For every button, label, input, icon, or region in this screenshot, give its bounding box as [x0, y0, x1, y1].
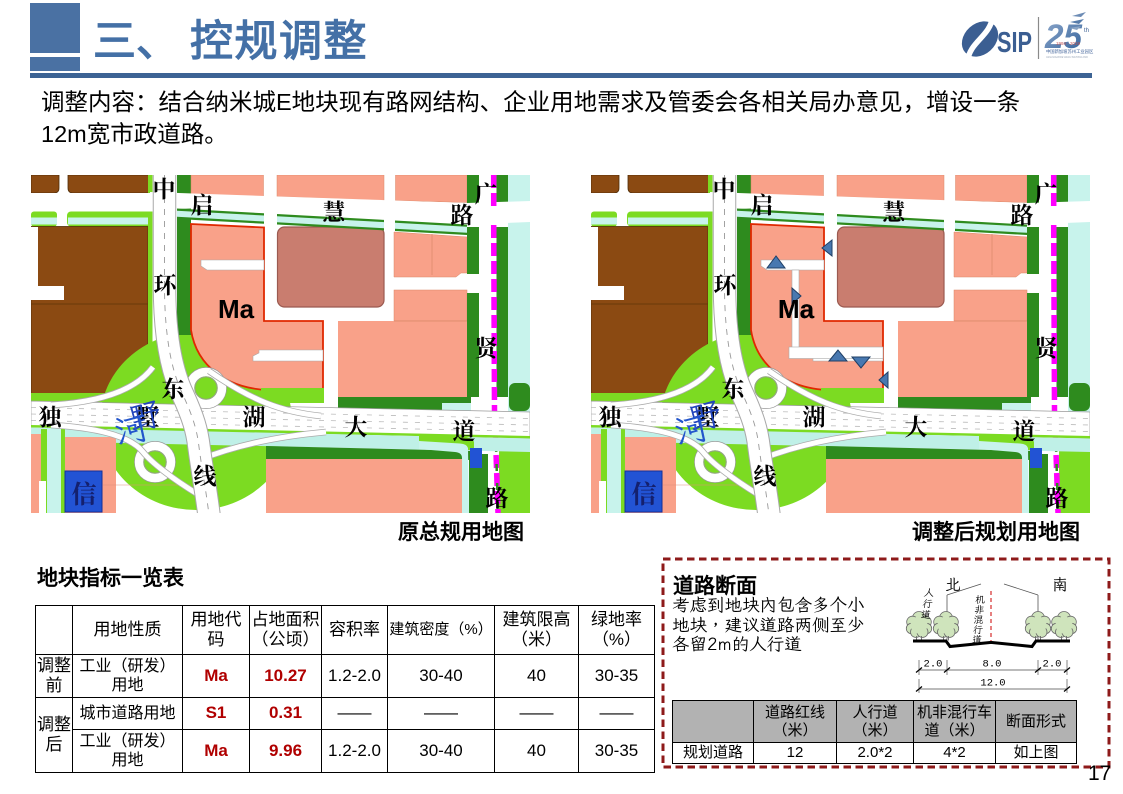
svg-text:道: 道 [972, 633, 983, 646]
svg-text:2.0: 2.0 [1043, 659, 1062, 671]
svg-text:th: th [1084, 28, 1089, 34]
svg-text:道: 道 [920, 608, 932, 621]
svg-text:道: 道 [453, 413, 476, 446]
svg-text:路: 路 [451, 197, 474, 230]
svg-text:环: 环 [154, 267, 179, 300]
svg-text:慧: 慧 [323, 194, 347, 227]
svg-text:贤: 贤 [475, 330, 501, 363]
svg-text:中国新加坡苏州工业园区: 中国新加坡苏州工业园区 [1046, 48, 1094, 55]
svg-text:线: 线 [194, 458, 217, 491]
svg-text:SIP: SIP [997, 27, 1032, 59]
svg-text:8.0: 8.0 [983, 659, 1002, 671]
svg-text:12.0: 12.0 [980, 678, 1005, 690]
svg-text:路: 路 [486, 480, 509, 513]
svg-text:信: 信 [71, 475, 96, 511]
svg-text:启: 启 [191, 187, 214, 220]
svg-text:Ma: Ma [778, 294, 815, 324]
svg-text:湖: 湖 [243, 399, 266, 432]
svg-text:东: 东 [162, 371, 187, 404]
svg-text:Ma: Ma [218, 294, 255, 324]
svg-text:独: 独 [39, 399, 64, 432]
svg-text:大: 大 [345, 409, 368, 442]
svg-text:南: 南 [1052, 573, 1068, 595]
svg-text:中: 中 [153, 175, 176, 204]
svg-text:CHINA-SINGAPORE SUZHOU INDUSTR: CHINA-SINGAPORE SUZHOU INDUSTRIAL PARK [1046, 55, 1088, 59]
svg-text:广: 广 [475, 176, 498, 209]
svg-text:2.0: 2.0 [924, 659, 943, 671]
svg-text:1994 - 2019: 1994 - 2019 [1056, 41, 1081, 46]
svg-text:北: 北 [945, 573, 961, 595]
